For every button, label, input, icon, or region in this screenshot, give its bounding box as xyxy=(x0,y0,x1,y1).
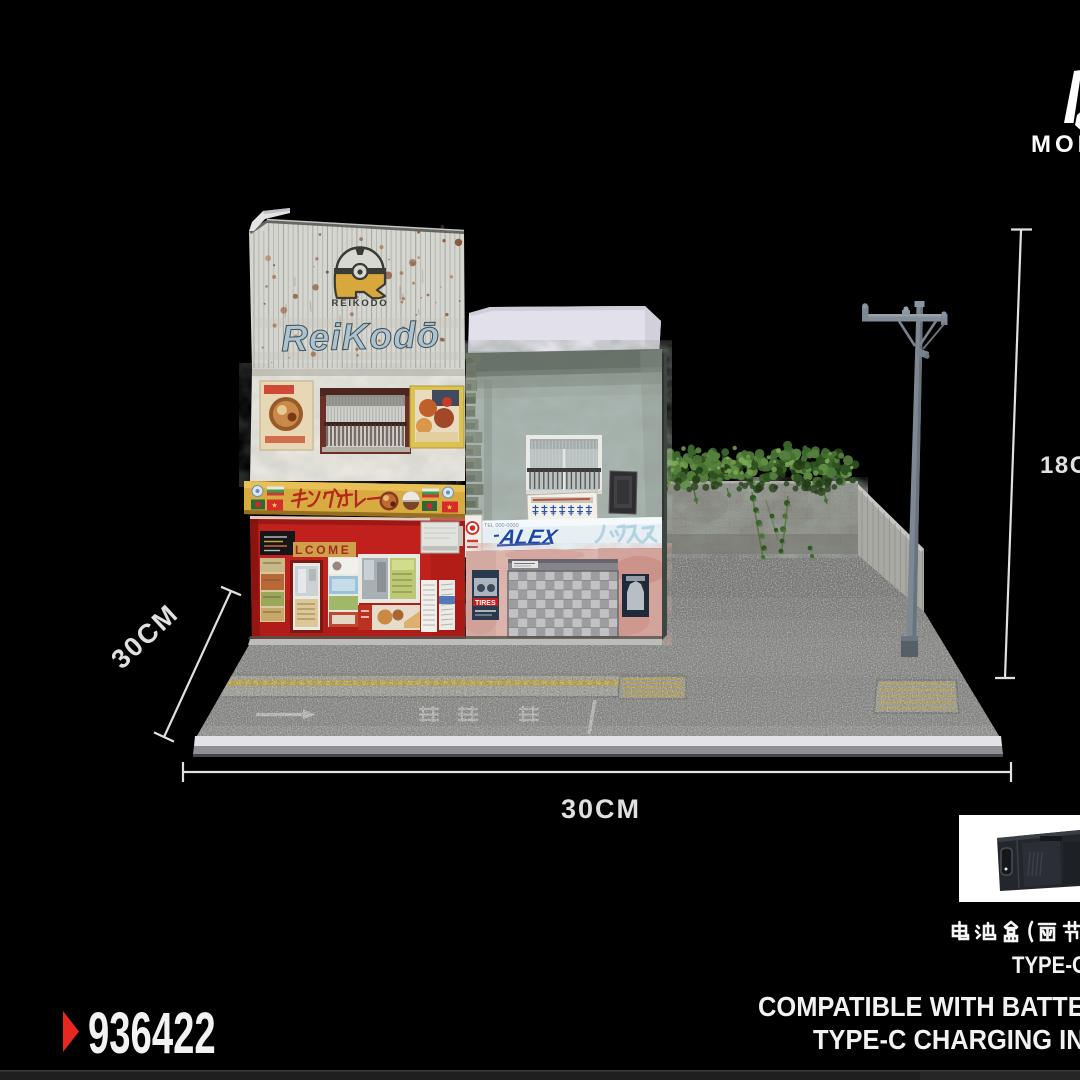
svg-text:TEL 000-0000: TEL 000-0000 xyxy=(484,523,519,529)
svg-text:ReiKodō: ReiKodō xyxy=(281,314,441,359)
svg-text:30CM: 30CM xyxy=(561,794,641,824)
svg-text:TYPE-C CHARGING INTERFACE: TYPE-C CHARGING INTERFACE xyxy=(813,1024,1080,1055)
svg-text:COMPATIBLE WITH BATTERY: COMPATIBLE WITH BATTERY xyxy=(758,991,1080,1022)
svg-text:LCOME: LCOME xyxy=(295,543,351,557)
svg-text:TYPE-CH: TYPE-CH xyxy=(1012,951,1080,978)
svg-text:REIKODO: REIKODO xyxy=(332,298,389,309)
svg-text:TIRES: TIRES xyxy=(475,600,496,607)
svg-text:★: ★ xyxy=(446,504,452,512)
svg-text:MOD: MOD xyxy=(1031,131,1080,158)
svg-text:18CM: 18CM xyxy=(1040,452,1080,479)
svg-text:936422: 936422 xyxy=(88,1002,216,1066)
svg-text:★: ★ xyxy=(271,502,277,510)
